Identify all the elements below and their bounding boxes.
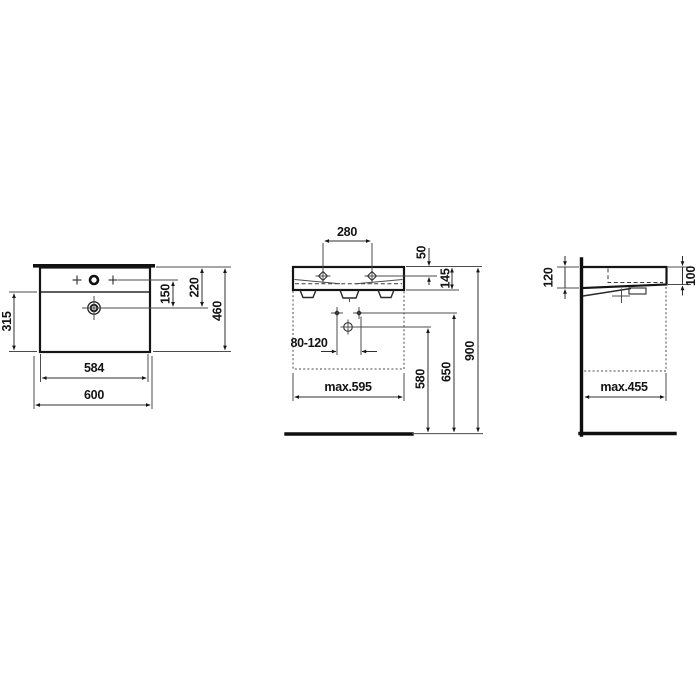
dimension-150: 150 <box>158 282 173 306</box>
dim-label-580: 580 <box>413 369 427 389</box>
dim-label-max455: max.455 <box>600 380 648 394</box>
tap-hole-mark-right-icon <box>109 276 118 285</box>
bracket-slant-side <box>583 289 631 297</box>
bowl-slope-left <box>295 280 341 284</box>
dimension-650: 650 <box>439 315 454 432</box>
dimension-50: 50 <box>414 246 429 285</box>
dimension-280: 280 <box>325 225 370 241</box>
dim-label-460: 460 <box>210 301 224 321</box>
basin-outline-side <box>583 267 667 288</box>
dim-label-280: 280 <box>337 225 357 239</box>
dimension-120: 120 <box>541 256 565 299</box>
dim-label-100: 100 <box>684 266 698 286</box>
dim-label-150: 150 <box>158 284 172 304</box>
dim-label-650: 650 <box>439 362 453 382</box>
dimension-max455: max.455 <box>585 380 664 397</box>
clearance-envelope-side <box>583 287 666 371</box>
dim-label-220: 220 <box>187 277 201 297</box>
dimension-584: 584 <box>42 361 146 378</box>
dim-label-584: 584 <box>84 361 104 375</box>
basin-outline-front <box>293 267 404 290</box>
bracket-left <box>300 290 316 298</box>
top-view: 150 220 460 315 584 600 <box>0 264 231 409</box>
mounting-bolt-right-icon <box>353 307 365 319</box>
dimension-80-120: 80-120 <box>290 336 377 352</box>
dim-label-max595: max.595 <box>324 380 372 394</box>
bowl-hidden-line-side <box>608 269 663 283</box>
drain-outlet-side <box>629 288 646 294</box>
tap-hole-icon <box>90 276 98 284</box>
dim-label-120: 120 <box>541 267 555 287</box>
dimension-460: 460 <box>210 269 225 350</box>
dimension-580: 580 <box>413 329 428 432</box>
washbasin-technical-drawing: 150 220 460 315 584 600 <box>0 0 700 700</box>
dim-label-145: 145 <box>438 268 452 288</box>
dim-label-50: 50 <box>414 246 428 260</box>
dimension-315: 315 <box>0 294 14 350</box>
dim-label-315: 315 <box>0 311 14 331</box>
drawing-canvas: 150 220 460 315 584 600 <box>0 0 700 700</box>
dim-label-80-120: 80-120 <box>290 336 327 350</box>
dimension-100: 100 <box>683 256 698 296</box>
dimension-max595: max.595 <box>295 380 402 397</box>
front-view: 280 80-120 <box>286 225 483 434</box>
bowl-slope-right <box>356 280 403 284</box>
dimension-220: 220 <box>187 269 202 306</box>
tap-hole-mark-left-icon <box>73 276 82 285</box>
dimension-900: 900 <box>463 268 478 432</box>
dim-label-600: 600 <box>84 388 104 402</box>
dim-label-900: 900 <box>463 341 477 361</box>
dimension-600: 600 <box>36 388 150 405</box>
dimension-145: 145 <box>438 268 452 289</box>
bracket-right <box>378 290 394 298</box>
bracket-middle <box>340 290 359 298</box>
side-view: 120 100 max.455 <box>541 256 698 435</box>
